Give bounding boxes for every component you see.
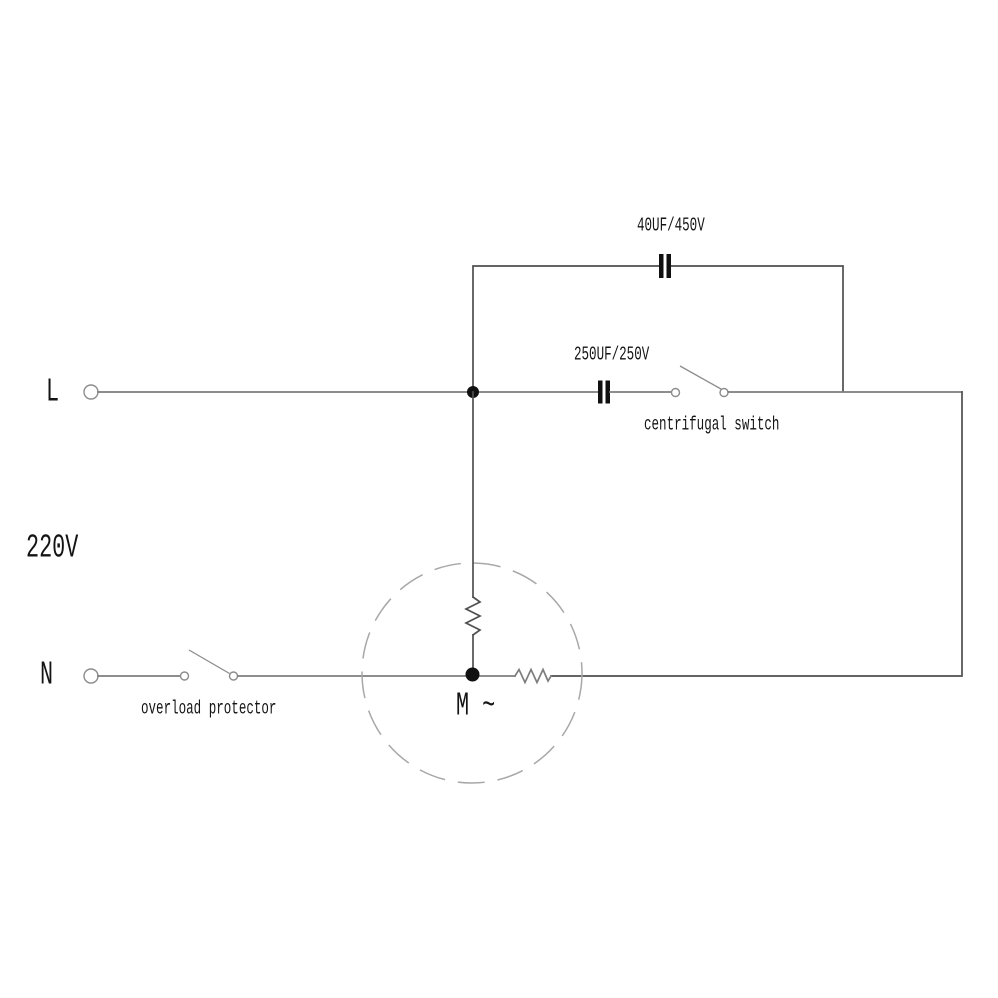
l-supply-line	[84, 366, 962, 404]
circuit-svg	[0, 0, 998, 998]
centrifugal-switch-contact-icon	[672, 389, 680, 397]
winding-resistor-horizontal-icon	[515, 670, 551, 683]
n-terminal-label: N	[40, 659, 53, 692]
winding-resistor-vertical-icon	[466, 597, 480, 635]
start-capacitor-label: 250UF/250V	[574, 346, 649, 365]
junction-dot	[466, 668, 480, 682]
motor-wiring-diagram: L N 220V 40UF/450V 250UF/250V centrifuga…	[0, 0, 998, 998]
centrifugal-switch-contact-icon	[720, 389, 728, 397]
l-terminal-label: L	[46, 376, 59, 409]
motor-label: M ~	[456, 690, 495, 723]
n-supply-line	[84, 650, 515, 683]
n-terminal-icon	[84, 669, 98, 683]
overload-protector-blade-icon	[189, 650, 230, 674]
run-capacitor-branch	[473, 254, 843, 392]
run-capacitor-icon	[659, 254, 664, 278]
centrifugal-switch-label: centrifugal switch	[644, 416, 779, 435]
l-terminal-icon	[84, 385, 98, 399]
wire-top-left	[473, 266, 659, 392]
run-capacitor-label: 40UF/450V	[637, 217, 705, 236]
run-capacitor-icon	[667, 254, 672, 278]
supply-voltage-label: 220V	[26, 532, 78, 565]
centrifugal-switch-blade-icon	[680, 366, 721, 389]
overload-protector-label: overload protector	[141, 700, 276, 719]
start-capacitor-icon	[598, 381, 603, 404]
overload-protector-contact-icon	[230, 672, 238, 680]
overload-protector-contact-icon	[181, 672, 189, 680]
wire-top-right	[671, 266, 843, 391]
